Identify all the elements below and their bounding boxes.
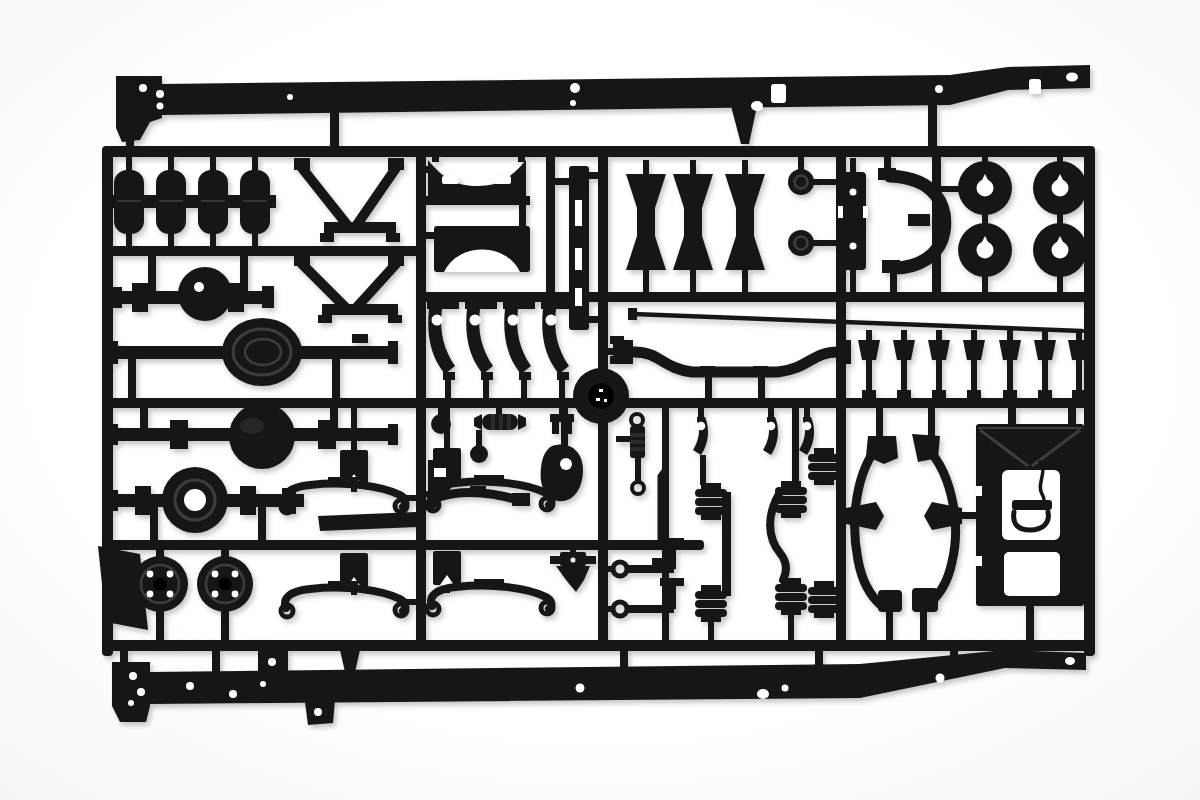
differential-housing	[178, 267, 232, 321]
brace-bar	[324, 222, 396, 233]
plate-body	[840, 172, 866, 270]
runner-vertical-2	[416, 146, 426, 644]
sprue-stub	[798, 155, 804, 171]
sprue-stub	[890, 272, 897, 292]
brake-drum-1	[132, 556, 188, 612]
crossmember-slot	[494, 176, 511, 184]
sprue-stub	[128, 359, 136, 398]
sprue-stub	[1026, 604, 1034, 641]
rear-panel	[976, 406, 1084, 641]
wheel-disc-1	[958, 161, 1012, 215]
brace-foot	[318, 315, 332, 323]
brace-foot	[388, 315, 402, 323]
axle-bracket	[262, 286, 274, 308]
photo-of-model-kit-sprue	[0, 0, 1200, 800]
spring-perch	[240, 486, 256, 494]
sprue-stub	[405, 599, 417, 605]
plate-hole	[850, 243, 857, 250]
rivet-hole	[229, 690, 237, 698]
axle-end	[106, 341, 118, 364]
sprue-stub	[616, 436, 630, 442]
sprue-stub	[589, 316, 598, 323]
sprue-stub	[705, 377, 712, 398]
sprue-stub	[405, 495, 417, 501]
sprue-stub	[876, 408, 883, 438]
rivet-hole	[186, 682, 194, 690]
axle-end	[388, 341, 398, 364]
sprue-stub	[941, 186, 959, 192]
spring-perch	[170, 441, 188, 449]
spring-perch	[132, 283, 148, 291]
sprue-stub	[812, 179, 836, 185]
rivet-hole	[157, 103, 164, 110]
strip-slot	[575, 288, 582, 306]
sprue-stub	[928, 96, 937, 148]
tab-hole	[314, 708, 322, 716]
hub-mark	[596, 398, 600, 401]
bracket-step	[908, 214, 930, 226]
disc-hub	[588, 383, 614, 409]
sprue-stub	[708, 622, 714, 641]
arch-tab	[878, 590, 902, 612]
rivet-hole	[129, 672, 137, 680]
rivet-hole	[935, 85, 943, 93]
rivet-hole	[128, 700, 134, 706]
sprue-stub	[608, 566, 615, 572]
hub-mark	[599, 389, 603, 392]
runner-right	[1084, 146, 1095, 656]
rivet-hole	[139, 84, 147, 92]
rivet-hole	[156, 90, 164, 98]
strip-slot	[575, 248, 582, 270]
sprue-stub	[555, 178, 569, 185]
brace-bar	[322, 304, 398, 315]
spring-perch	[228, 304, 244, 312]
sprue-stub	[126, 138, 134, 148]
panel-notch	[976, 556, 982, 566]
rail-notch	[751, 101, 763, 111]
plate-hole	[850, 189, 857, 196]
plate-notch	[838, 206, 843, 218]
bar-end-tab	[838, 340, 851, 364]
sprue-stub	[920, 610, 927, 642]
filler-hole	[194, 282, 204, 292]
axle-bracket	[352, 334, 368, 343]
wheel-disc-3	[958, 223, 1012, 277]
brace-foot	[320, 233, 334, 242]
sprue-stub	[815, 649, 823, 667]
sprue-stub	[589, 172, 598, 179]
rivet-hole	[570, 83, 580, 93]
sprue-stub	[1068, 406, 1076, 426]
crossmember-slot	[442, 176, 459, 184]
sprue-stub	[758, 377, 765, 398]
gearbox-hole	[560, 458, 572, 470]
bobbin-spacer-group	[626, 160, 765, 294]
spring-perch	[318, 420, 336, 428]
hub-cap-2	[788, 230, 814, 256]
sprue-stub	[962, 512, 978, 519]
flange-hole	[184, 489, 206, 511]
sprue-stub	[140, 408, 148, 428]
sprue-stub	[221, 611, 229, 642]
runner-lower	[104, 540, 704, 550]
runner-mid-left	[104, 246, 426, 256]
runner-vertical-3	[546, 146, 555, 302]
round-knob-2	[470, 445, 488, 463]
wheel-disc-2	[1033, 161, 1087, 215]
sprue-stub	[148, 256, 156, 291]
rivet-hole	[576, 684, 585, 693]
arch-tab	[912, 588, 938, 612]
sprue-stub	[982, 276, 988, 293]
rivet-hole	[570, 100, 576, 106]
rivet-hole	[287, 94, 293, 100]
rail-tab-down	[305, 700, 335, 725]
sprue-stub	[156, 611, 164, 642]
sprue-illustration	[0, 0, 1200, 800]
differential-housing	[229, 403, 295, 469]
rail-slot	[771, 84, 786, 103]
bracket-foot	[882, 260, 900, 273]
spring-perch	[132, 304, 148, 312]
ribbed-sleeve	[474, 414, 526, 430]
sprue-stub	[850, 270, 856, 292]
plate-notch	[863, 206, 868, 218]
bracket-hole	[268, 658, 276, 666]
strip-slot	[575, 200, 582, 226]
spring-perch	[135, 486, 151, 494]
rail-tip-hole	[1065, 657, 1075, 665]
sprue-stub	[608, 606, 615, 612]
sprue-stub	[476, 430, 482, 446]
sprue-stub	[1057, 276, 1063, 293]
sprue-stub	[420, 166, 428, 173]
rail-slot	[1029, 79, 1041, 94]
brake-drum-2	[197, 556, 253, 612]
spring-perch	[135, 507, 151, 515]
spring-perch	[170, 420, 188, 428]
bellows-link-bar	[722, 492, 731, 596]
axle-end	[106, 424, 118, 445]
rivet-hole	[137, 688, 145, 696]
sprue-stub	[330, 112, 339, 148]
bar-clamp	[700, 366, 715, 377]
rivet-hole	[782, 685, 789, 692]
sprue-stub	[561, 408, 568, 448]
rail-tip-hole	[1066, 73, 1078, 82]
sprue-stub	[258, 507, 266, 540]
sprue-stub	[886, 610, 893, 642]
wheel-disc-4	[1033, 223, 1087, 277]
sprue-stub	[850, 158, 856, 174]
panel-cutout-lower	[1004, 552, 1060, 596]
sprue-stub	[700, 455, 706, 485]
spring-perch	[318, 441, 336, 449]
crossmember-lip	[424, 196, 530, 205]
sprue-stub	[432, 150, 439, 162]
axle-end	[388, 424, 398, 445]
rivet-hole	[260, 681, 266, 687]
sprue-stub	[792, 408, 799, 482]
rail-bracket-square	[258, 650, 288, 674]
sprue-stub	[420, 232, 434, 239]
spring-perch	[240, 507, 256, 515]
sprue-stub	[212, 649, 220, 674]
sprue-stub	[928, 408, 935, 436]
bar-clamp	[753, 366, 768, 377]
axle-end	[106, 490, 118, 511]
rivet-hole	[936, 674, 945, 683]
hub-cap-1	[788, 169, 814, 195]
sprue-stub	[1008, 406, 1016, 426]
center-disc	[573, 368, 629, 424]
hub-mark	[604, 399, 607, 402]
sprue-stub	[788, 615, 794, 641]
sprue-stub	[518, 150, 525, 162]
sprue-stub	[519, 205, 526, 226]
round-knob-1	[431, 414, 451, 434]
sprue-stub	[150, 507, 158, 540]
sprue-stub	[812, 240, 836, 246]
axle-end	[108, 287, 122, 308]
brace-foot	[386, 233, 400, 242]
diff-highlight	[240, 418, 264, 434]
rail-notch	[757, 689, 769, 699]
panel-notch	[976, 486, 982, 496]
sprue-stub	[332, 359, 340, 398]
sprue-stub	[351, 408, 357, 452]
